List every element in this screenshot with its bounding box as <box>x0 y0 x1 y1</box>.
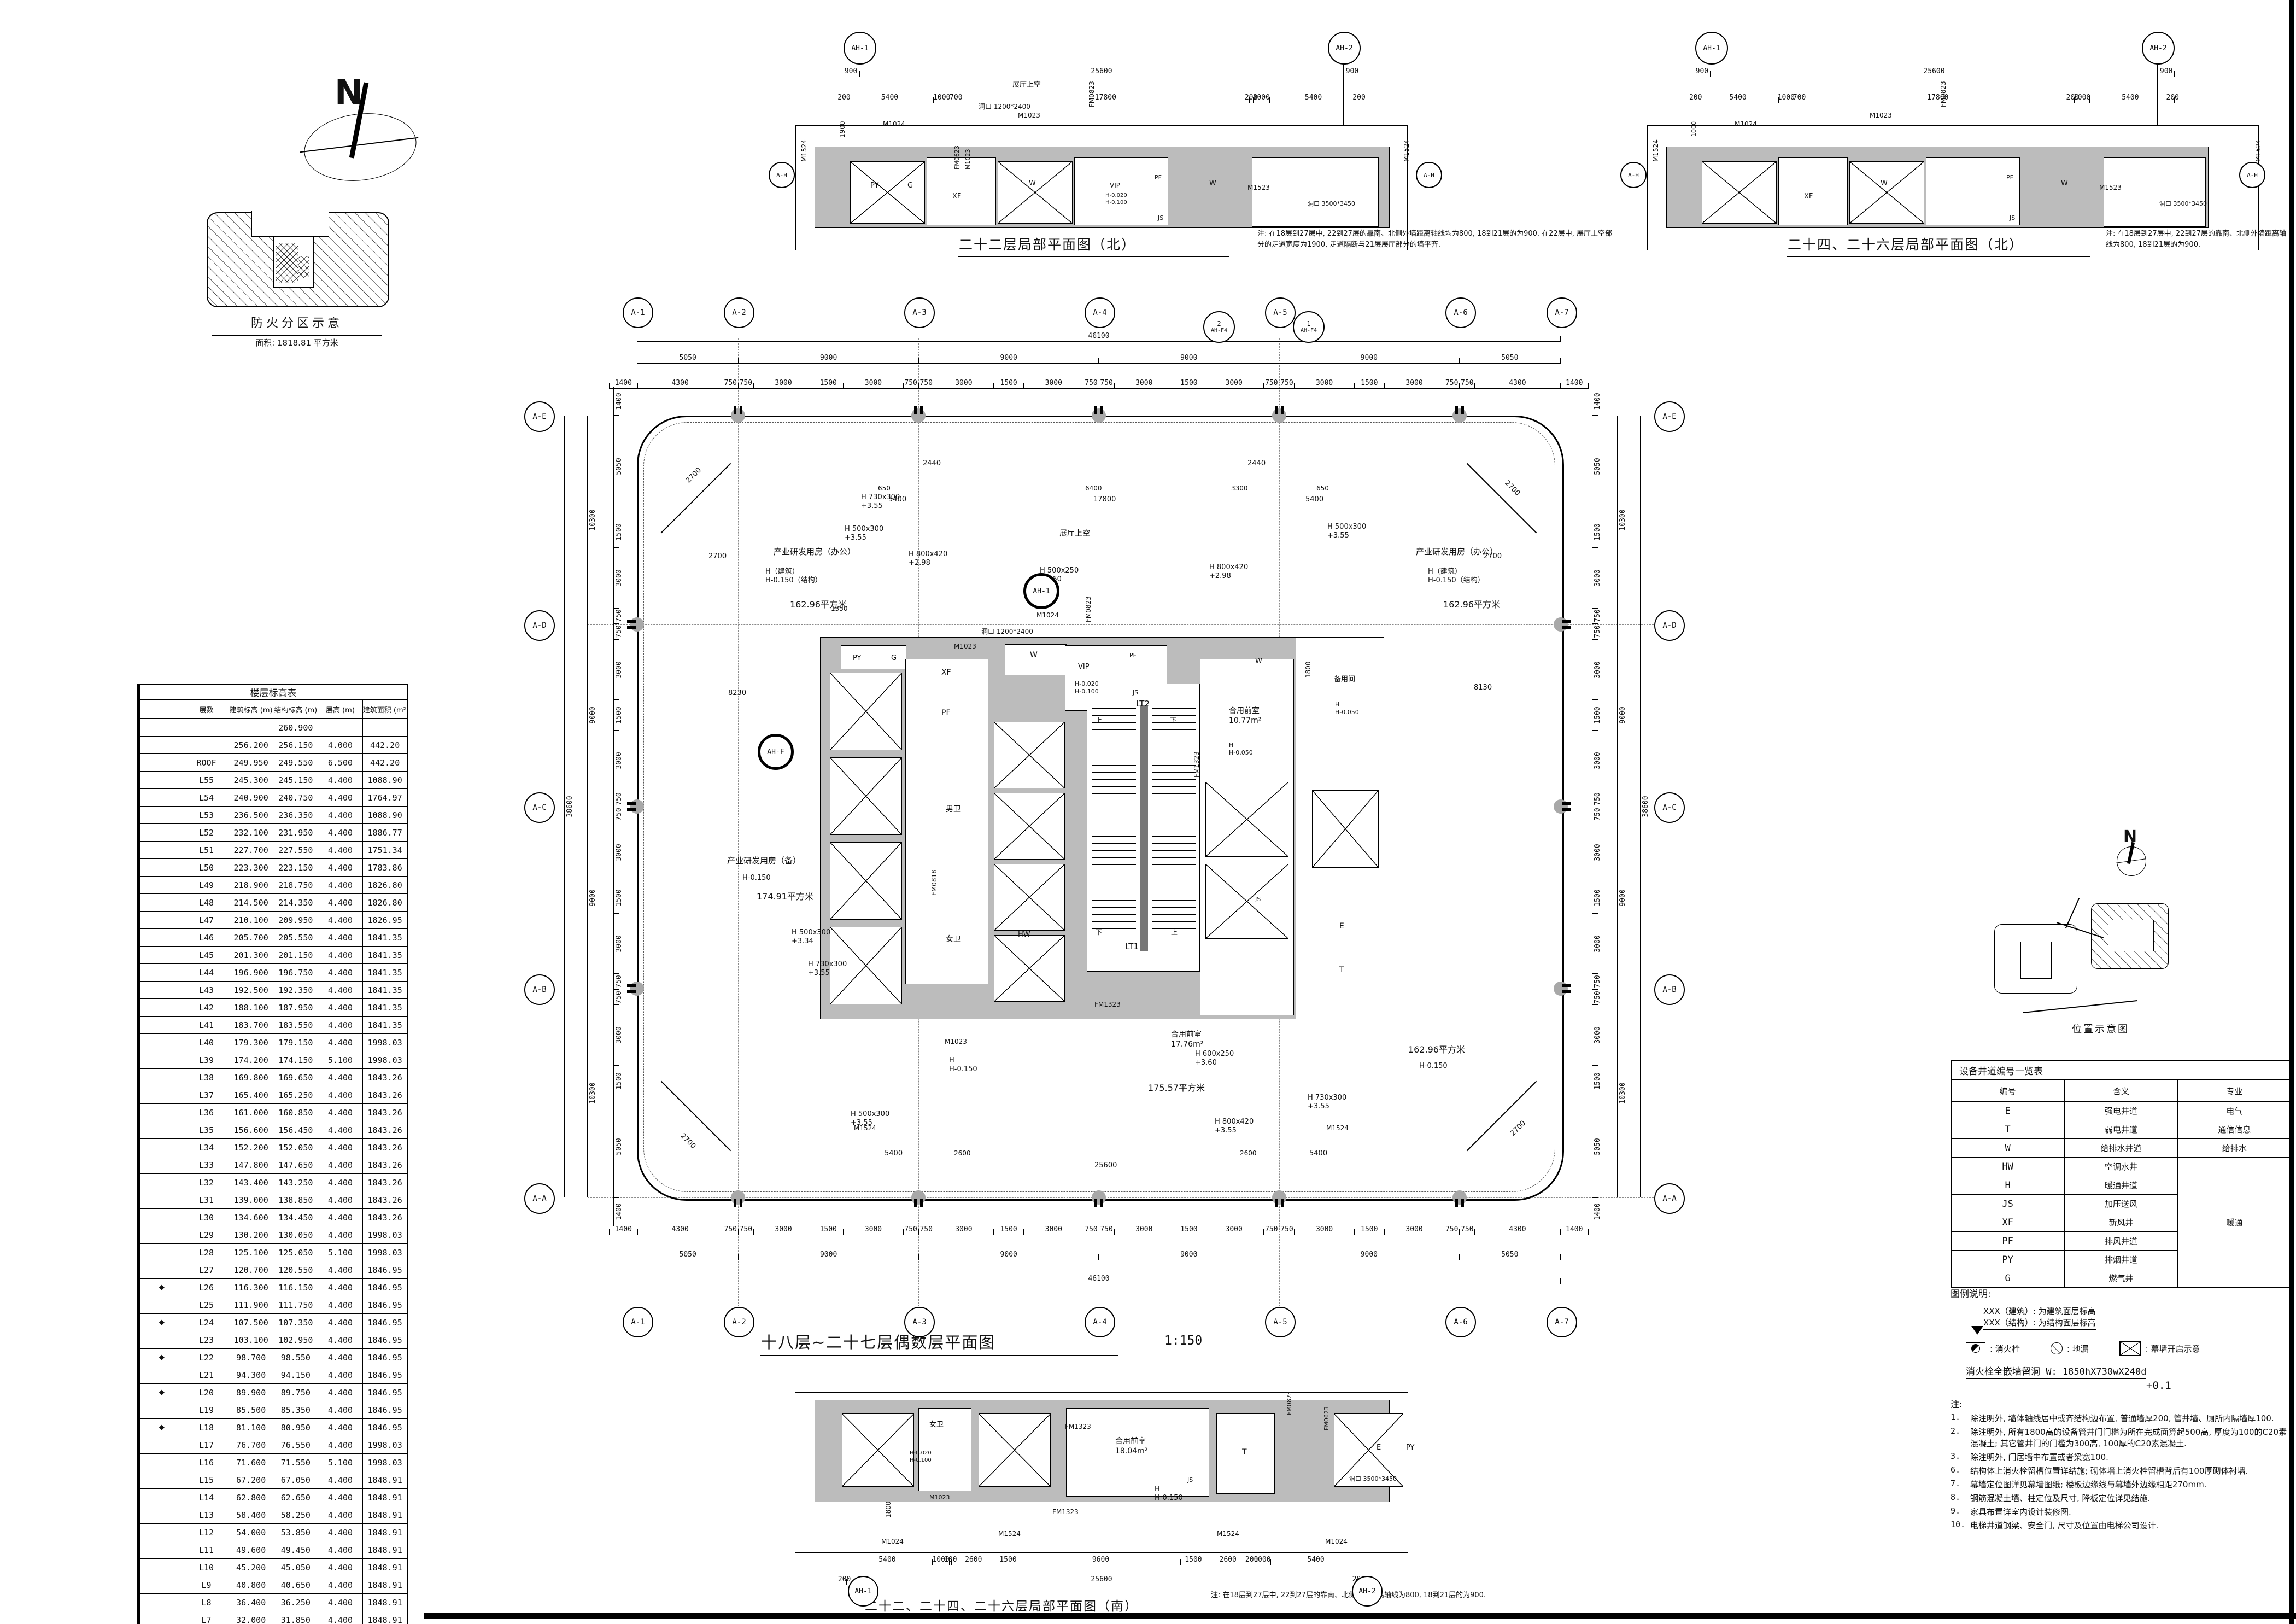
levels-cell: L42 <box>184 999 229 1017</box>
levels-cell: 1848.91 <box>362 1506 407 1524</box>
axis-bubble: AH-2 <box>2142 32 2175 65</box>
plan-label: H 500x300 +3.34 <box>792 928 830 947</box>
levels-cell <box>139 719 184 737</box>
levels-cell: 152.200 <box>229 1139 273 1156</box>
plan-label: H 500x300 +3.55 <box>851 1110 889 1128</box>
levels-cell: 442.20 <box>362 754 407 772</box>
plan-label: H（建筑） H-0.150（结构） <box>1428 568 1485 586</box>
column <box>911 1190 926 1205</box>
levels-cell: 4.400 <box>318 1104 363 1121</box>
levels-cell <box>139 1226 184 1244</box>
room-label: LT1 <box>1125 942 1139 952</box>
plan-label: 女卫 <box>929 1421 944 1429</box>
levels-cell: 81.100 <box>229 1419 273 1436</box>
levels-cell: L34 <box>184 1139 229 1156</box>
plan-label: PF <box>2006 174 2013 182</box>
mullion-tick <box>1562 626 1571 629</box>
levels-cell: L48 <box>184 894 229 912</box>
axis-bubble: A-7 <box>1547 297 1577 328</box>
axis-bubble: AH-1 <box>848 1576 878 1607</box>
levels-row: L55245.300245.1504.4001088.90 <box>139 772 407 789</box>
shaft-row: HW空调水井暖通 <box>1951 1158 2291 1176</box>
axis-bubble: A-A <box>1654 1183 1685 1214</box>
levels-cell <box>139 1471 184 1489</box>
plan-label: H 600x250 +3.60 <box>1195 1050 1234 1068</box>
plan-label: 162.96平方米 <box>1443 599 1500 610</box>
levels-cell: L12 <box>184 1524 229 1541</box>
levels-cell: 134.600 <box>229 1209 273 1226</box>
mullion-tick <box>734 406 736 414</box>
levels-cell: 4.400 <box>318 1594 363 1611</box>
levels-row: L1149.60049.4504.4001848.91 <box>139 1541 407 1559</box>
levels-row: L836.40036.2504.4001848.91 <box>139 1594 407 1611</box>
plan-label: G <box>907 182 913 190</box>
plan-label: 162.96平方米 <box>1408 1044 1465 1055</box>
levels-row: L940.80040.6504.4001848.91 <box>139 1576 407 1594</box>
levels-cell: L14 <box>184 1489 229 1506</box>
levels-cell: L38 <box>184 1069 229 1086</box>
levels-cell: 40.800 <box>229 1576 273 1594</box>
levels-cell: L36 <box>184 1104 229 1121</box>
levels-cell: 120.550 <box>273 1261 318 1279</box>
shaft-cell: 弱电井道 <box>2064 1120 2177 1139</box>
axis-leader <box>1343 62 1344 125</box>
levels-row: L39174.200174.1505.1001998.03 <box>139 1051 407 1069</box>
levels-row: L1776.70076.5504.4001998.03 <box>139 1436 407 1454</box>
shaft-cell: E <box>1951 1102 2064 1120</box>
plan-title-bottom: 二十二、二十四、二十六层局部平面图（南） <box>864 1596 1190 1617</box>
axis-bubble: A-H <box>2239 162 2265 188</box>
levels-cell: 1846.95 <box>362 1384 407 1401</box>
levels-cell: 205.550 <box>273 929 318 947</box>
levels-cell: 1843.26 <box>362 1069 407 1086</box>
mullion-tick <box>1562 808 1571 811</box>
shaft-cell: 燃气井 <box>2064 1269 2177 1288</box>
levels-cell: 62.650 <box>273 1489 318 1506</box>
shaft-cell: 新风井 <box>2064 1213 2177 1232</box>
plan-label: M1524 <box>1652 139 1660 162</box>
levels-cell: 4.400 <box>318 1489 363 1506</box>
drawing-sheet: N 防火分区示意 面积: 1818.81 平方米 楼层标高表 层数建筑标高 (m… <box>0 0 2296 1624</box>
levels-row: L30134.600134.4504.4001843.26 <box>139 1209 407 1226</box>
plan-label: H-0.150 <box>742 874 771 883</box>
curtain-open-label: : 幕墙开启示意 <box>2146 1343 2200 1354</box>
axis-bubble: A-C <box>524 792 555 823</box>
plan-label: M1524 <box>1403 139 1411 162</box>
keyplan-building-right-core <box>2108 920 2154 951</box>
column <box>1272 408 1286 423</box>
main-plan-scale: 1:150 <box>1164 1333 1202 1349</box>
levels-cell: 4.400 <box>318 1559 363 1576</box>
shaft-table-title: 设备井道编号一览表 <box>1951 1060 2291 1080</box>
levels-cell: 58.250 <box>273 1506 318 1524</box>
levels-cell: 1841.35 <box>362 982 407 999</box>
levels-cell: 4.400 <box>318 1261 363 1279</box>
plan-label: M1524 <box>800 139 809 162</box>
levels-cell <box>139 1069 184 1086</box>
plan-label: M1524 <box>998 1530 1021 1538</box>
levels-cell: 45.050 <box>273 1559 318 1576</box>
shaft-cell: 强电井道 <box>2064 1102 2177 1120</box>
levels-cell: 5.100 <box>318 1051 363 1069</box>
levels-row: L28125.100125.0505.1001998.03 <box>139 1244 407 1261</box>
plan-label: 6400 <box>1085 484 1102 493</box>
levels-cell <box>229 719 273 737</box>
levels-cell: 4.400 <box>318 947 363 964</box>
levels-row: L52232.100231.9504.4001886.77 <box>139 824 407 842</box>
levels-cell: 245.300 <box>229 772 273 789</box>
column <box>630 799 644 814</box>
levels-cell: 71.600 <box>229 1454 273 1471</box>
plan-label: 产业研发用房（办公） <box>774 547 856 557</box>
levels-cell: 1998.03 <box>362 1436 407 1454</box>
axis-leader <box>859 62 859 125</box>
mullion-tick <box>1461 406 1464 414</box>
plan-label: M1023 <box>964 149 972 170</box>
levels-row: L47210.100209.9504.4001826.95 <box>139 912 407 929</box>
levels-cell: 249.550 <box>273 754 318 772</box>
levels-cell: 174.150 <box>273 1051 318 1069</box>
levels-cell: 4.400 <box>318 1069 363 1086</box>
levels-cell: 4.400 <box>318 1226 363 1244</box>
levels-cell <box>139 947 184 964</box>
plan-label: M1524 <box>1326 1124 1349 1132</box>
elevator-shaft <box>994 935 1065 1002</box>
axis-bubble: A-2 <box>724 1307 754 1337</box>
detail-marker: AH-F <box>758 734 794 770</box>
levels-cell: 98.550 <box>273 1349 318 1366</box>
levels-cell <box>139 772 184 789</box>
levels-cell <box>139 982 184 999</box>
drain-label: : 地漏 <box>2067 1343 2089 1354</box>
plan-label: VIP <box>1110 182 1120 190</box>
shaft-cell: 暖通井道 <box>2064 1176 2177 1195</box>
plan-label: FM0823 <box>1088 81 1096 107</box>
levels-cell: 4.400 <box>318 982 363 999</box>
main-top-total-dim: 46100 <box>637 335 1561 342</box>
levels-cell: L40 <box>184 1034 229 1051</box>
room-label: 女卫 <box>946 935 961 945</box>
levels-cell: L16 <box>184 1454 229 1471</box>
mullion-tick <box>1094 1199 1097 1207</box>
column <box>1452 1190 1467 1205</box>
hydrant-icon <box>1966 1342 1985 1354</box>
levels-row: L27120.700120.5504.4001846.95 <box>139 1261 407 1279</box>
levels-row: 260.900 <box>139 719 407 737</box>
levels-cell: 147.800 <box>229 1156 273 1174</box>
levels-cell: 1826.80 <box>362 877 407 894</box>
partial-dim-row2: 20025600200 <box>842 1578 1361 1585</box>
levels-cell: 232.100 <box>229 824 273 842</box>
partial-dim-row1: 5400100010026001500960015002600200100054… <box>842 1558 1361 1565</box>
levels-cell: 245.150 <box>273 772 318 789</box>
mullion-tick <box>1275 406 1278 414</box>
note-item: 7.幕墙定位图详见幕墙图纸; 楼板边缘线与幕墙外边缘相距270mm. <box>1951 1479 2292 1490</box>
levels-cell: 1843.26 <box>362 1086 407 1104</box>
levels-cell: L39 <box>184 1051 229 1069</box>
levels-cell: 5.100 <box>318 1244 363 1261</box>
column <box>731 408 745 423</box>
room-label: E <box>1339 922 1344 932</box>
levels-cell: L54 <box>184 789 229 807</box>
keyplan-title: 位置示意图 <box>2072 1024 2129 1036</box>
note-item: 1.除注明外, 墙体轴线居中或齐结构边布置, 普通墙厚200, 管井墙、厕所内隔… <box>1951 1412 2292 1424</box>
levels-cell <box>139 1209 184 1226</box>
main-right-total-dim: 38600 <box>1640 416 1647 1197</box>
mullion-tick <box>1281 1199 1284 1207</box>
levels-header-cell: 层高 (m) <box>318 699 363 719</box>
levels-cell: 4.400 <box>318 1139 363 1156</box>
levels-cell: L37 <box>184 1086 229 1104</box>
plan-label: FM0823 <box>1286 1391 1293 1415</box>
levels-cell <box>139 1104 184 1121</box>
levels-cell: 1848.91 <box>362 1541 407 1559</box>
main-bottom-major-dims: 505090009000900090005050 <box>637 1253 1561 1260</box>
mullion-tick <box>740 406 742 414</box>
axis-bubble: A-D <box>1654 610 1685 641</box>
levels-cell: 1998.03 <box>362 1244 407 1261</box>
levels-cell: 188.100 <box>229 999 273 1017</box>
main-top-major-dims: 505090009000900090005050 <box>637 357 1561 364</box>
levels-cell <box>139 1191 184 1209</box>
shaft-cell: PF <box>1951 1232 2064 1251</box>
levels-row: L1671.60071.5505.1001998.03 <box>139 1454 407 1471</box>
levels-cell: 1998.03 <box>362 1454 407 1471</box>
levels-cell: 134.450 <box>273 1209 318 1226</box>
levels-cell: 111.750 <box>273 1296 318 1314</box>
levels-table-header: 层数建筑标高 (m)结构标高 (m)层高 (m)建筑面积 (m²) <box>139 699 407 719</box>
column <box>911 408 926 423</box>
levels-cell: 4.400 <box>318 807 363 824</box>
levels-cell: 89.900 <box>229 1384 273 1401</box>
levels-cell: L52 <box>184 824 229 842</box>
levels-cell: 227.700 <box>229 842 273 859</box>
levels-cell: L43 <box>184 982 229 999</box>
plan-label: PY <box>870 182 879 190</box>
levels-row: L33147.800147.6504.4001843.26 <box>139 1156 407 1174</box>
levels-cell <box>139 1051 184 1069</box>
levels-cell: 152.050 <box>273 1139 318 1156</box>
plan-label: 1000 <box>1690 121 1698 137</box>
levels-cell: 4.400 <box>318 1279 363 1296</box>
levels-cell: 156.600 <box>229 1121 273 1139</box>
keyplan-road-3 <box>2065 898 2080 928</box>
levels-cell: 4.400 <box>318 1034 363 1051</box>
level-mark-icon <box>1971 1326 1983 1335</box>
fire-core-hatch <box>276 243 298 283</box>
mullion-tick <box>627 802 636 805</box>
plan-label: FM0823 <box>1085 596 1093 622</box>
levels-cell: 4.400 <box>318 1017 363 1034</box>
levels-cell: 85.500 <box>229 1401 273 1419</box>
levels-row: L48214.500214.3504.4001826.80 <box>139 894 407 912</box>
levels-cell: 45.200 <box>229 1559 273 1576</box>
levels-cell: 260.900 <box>273 719 318 737</box>
levels-cell: 107.500 <box>229 1314 273 1331</box>
levels-cell <box>139 1261 184 1279</box>
room-label: H H-0.050 <box>1335 701 1359 716</box>
levels-cell: 4.000 <box>318 737 363 754</box>
levels-cell <box>139 807 184 824</box>
plan-label: M1024 <box>1325 1538 1348 1546</box>
plan-label: 2440 <box>1247 459 1266 468</box>
levels-cell <box>139 1489 184 1506</box>
axis-bubble: A-7 <box>1547 1307 1577 1337</box>
core-room <box>1074 157 1168 225</box>
plan-label: 3300 <box>1231 484 1248 493</box>
plan-label: 1800 <box>1304 661 1313 678</box>
levels-cell: L27 <box>184 1261 229 1279</box>
axis-bubble: A-6 <box>1445 1307 1476 1337</box>
plan-label: W <box>1209 179 1216 188</box>
note-item: 10.电梯井道钢梁、安全门, 尺寸及位置由电梯公司设计. <box>1951 1520 2292 1531</box>
levels-cell: 160.850 <box>273 1104 318 1121</box>
stair-mid-wall <box>1140 705 1148 951</box>
levels-row: L1567.20067.0504.4001848.91 <box>139 1471 407 1489</box>
levels-row: ◆L24107.500107.3504.4001846.95 <box>139 1314 407 1331</box>
mullion-tick <box>914 1199 917 1207</box>
elevator-shaft <box>1205 864 1288 939</box>
plan-label: M1023 <box>1018 112 1040 120</box>
plan-label: H（建筑） H-0.150（结构） <box>765 568 822 586</box>
levels-cell: 1846.95 <box>362 1314 407 1331</box>
levels-cell: L28 <box>184 1244 229 1261</box>
levels-cell <box>139 842 184 859</box>
levels-cell: 214.350 <box>273 894 318 912</box>
keyplan-building-left-core <box>2020 942 2052 979</box>
levels-cell: 71.550 <box>273 1454 318 1471</box>
plan-label: M1024 <box>1036 611 1059 620</box>
levels-cell: 49.450 <box>273 1541 318 1559</box>
mullion-tick <box>627 984 636 987</box>
levels-row: L1462.80062.6504.4001848.91 <box>139 1489 407 1506</box>
level-symbol-line-1: XXX（建筑）: 为建筑面层标高 <box>1983 1305 2292 1317</box>
plan-label: XF <box>952 192 961 201</box>
plan-label: 2600 <box>954 1149 971 1158</box>
levels-cell: 111.900 <box>229 1296 273 1314</box>
drain-icon <box>2051 1342 2063 1354</box>
levels-cell: 4.400 <box>318 1541 363 1559</box>
axis-bubble: A-D <box>524 610 555 641</box>
levels-cell <box>139 1559 184 1576</box>
mullion-tick <box>1562 984 1571 987</box>
plan-label: FM1323 <box>1052 1508 1079 1516</box>
axis-bubble: A-6 <box>1445 297 1476 328</box>
levels-cell: 4.400 <box>318 772 363 789</box>
levels-row: ◆L2089.90089.7504.4001846.95 <box>139 1384 407 1401</box>
levels-row: L23103.100102.9504.4001846.95 <box>139 1331 407 1349</box>
levels-cell: 143.400 <box>229 1174 273 1191</box>
levels-cell: 49.600 <box>229 1541 273 1559</box>
levels-cell: 4.400 <box>318 877 363 894</box>
mullion-tick <box>1281 406 1284 414</box>
plan-label: 8130 <box>1474 684 1492 692</box>
elevator-shaft <box>830 673 902 750</box>
axis-leader <box>2157 62 2158 125</box>
levels-cell: 116.150 <box>273 1279 318 1296</box>
levels-cell: 120.700 <box>229 1261 273 1279</box>
shaft-row: T弱电井道通信信息 <box>1951 1120 2291 1139</box>
axis-bubble: A-4 <box>1085 297 1115 328</box>
shaft-table-header: 编号含义专业 <box>1951 1080 2291 1102</box>
hydrant-dim-line: 消火栓全嵌墙留洞 W: 1850hX730wX240d <box>1966 1366 2146 1379</box>
plan-label: H H-0.150 <box>949 1056 977 1074</box>
plan-label: H 800x420 +2.98 <box>1209 563 1248 581</box>
column <box>731 1190 745 1205</box>
shaft-cell: H <box>1951 1176 2064 1195</box>
levels-cell <box>139 877 184 894</box>
levels-cell: 85.350 <box>273 1401 318 1419</box>
plan-label: JS <box>2010 214 2015 222</box>
shaft-cell-merged: 暖通 <box>2178 1158 2291 1288</box>
levels-row: L25111.900111.7504.4001846.95 <box>139 1296 407 1314</box>
levels-cell <box>139 737 184 754</box>
levels-cell: 4.400 <box>318 1191 363 1209</box>
plan-label: 洞口 1200*2400 <box>981 628 1033 636</box>
levels-cell: L13 <box>184 1506 229 1524</box>
levels-cell: 4.400 <box>318 1384 363 1401</box>
shaft-cell: T <box>1951 1120 2064 1139</box>
levels-cell: 4.400 <box>318 1156 363 1174</box>
levels-row: L40179.300179.1504.4001998.03 <box>139 1034 407 1051</box>
shaft-cell: G <box>1951 1269 2064 1288</box>
room-label: T <box>1339 966 1344 975</box>
mullion-tick <box>920 1199 923 1207</box>
levels-cell: 218.900 <box>229 877 273 894</box>
mullion-tick <box>1100 406 1103 414</box>
levels-cell: 139.000 <box>229 1191 273 1209</box>
axis-bubble: A-A <box>524 1183 555 1214</box>
levels-cell: 4.400 <box>318 964 363 982</box>
levels-cell: 103.100 <box>229 1331 273 1349</box>
shaft-cell: W <box>1951 1139 2064 1158</box>
levels-cell: ◆ <box>139 1384 184 1401</box>
partial-dim-row2: 200540010007001780020010005400200 <box>1694 96 2175 103</box>
fire-diagram-title: 防火分区示意 <box>212 316 382 336</box>
plan-label: H 730x300 +3.55 <box>808 960 847 978</box>
levels-cell <box>139 912 184 929</box>
levels-cell: L24 <box>184 1314 229 1331</box>
room-label: 上 <box>1096 716 1102 725</box>
mullion-tick <box>1461 1199 1464 1207</box>
plan-label: 5400 <box>885 1149 903 1158</box>
levels-cell: 76.550 <box>273 1436 318 1454</box>
plan-label: M1523 <box>2099 184 2122 192</box>
levels-cell: 1848.91 <box>362 1489 407 1506</box>
levels-cell <box>139 929 184 947</box>
levels-header-cell: 结构标高 (m) <box>273 699 318 719</box>
plan-label: 174.91平方米 <box>757 891 813 902</box>
levels-cell: 1846.95 <box>362 1296 407 1314</box>
note-item: 6.结构体上消火栓留槽位置详结施; 砌体墙上消火栓留槽背后有100厚砌体衬墙. <box>1951 1465 2292 1476</box>
plan-label: H 730x300 +3.55 <box>861 493 900 511</box>
main-bottom-minor-dims: 1400430075075030001500300075075030001500… <box>609 1228 1589 1235</box>
elevator-shaft <box>994 793 1065 860</box>
levels-cell: 125.050 <box>273 1244 318 1261</box>
column <box>1092 408 1106 423</box>
levels-cell: 4.400 <box>318 859 363 877</box>
levels-row: L34152.200152.0504.4001843.26 <box>139 1139 407 1156</box>
levels-row: L41183.700183.5504.4001841.35 <box>139 1017 407 1034</box>
plan-label: 17800 <box>1093 495 1116 504</box>
keyplan-road-2 <box>2023 1000 2137 1013</box>
levels-header-cell: 建筑标高 (m) <box>229 699 273 719</box>
levels-cell: 218.750 <box>273 877 318 894</box>
axis-bubble: A-E <box>524 401 555 432</box>
levels-row: ROOF249.950249.5506.500442.20 <box>139 754 407 772</box>
plan-label: M1023 <box>929 1494 950 1502</box>
axis-bubble: A-5 <box>1265 1307 1296 1337</box>
